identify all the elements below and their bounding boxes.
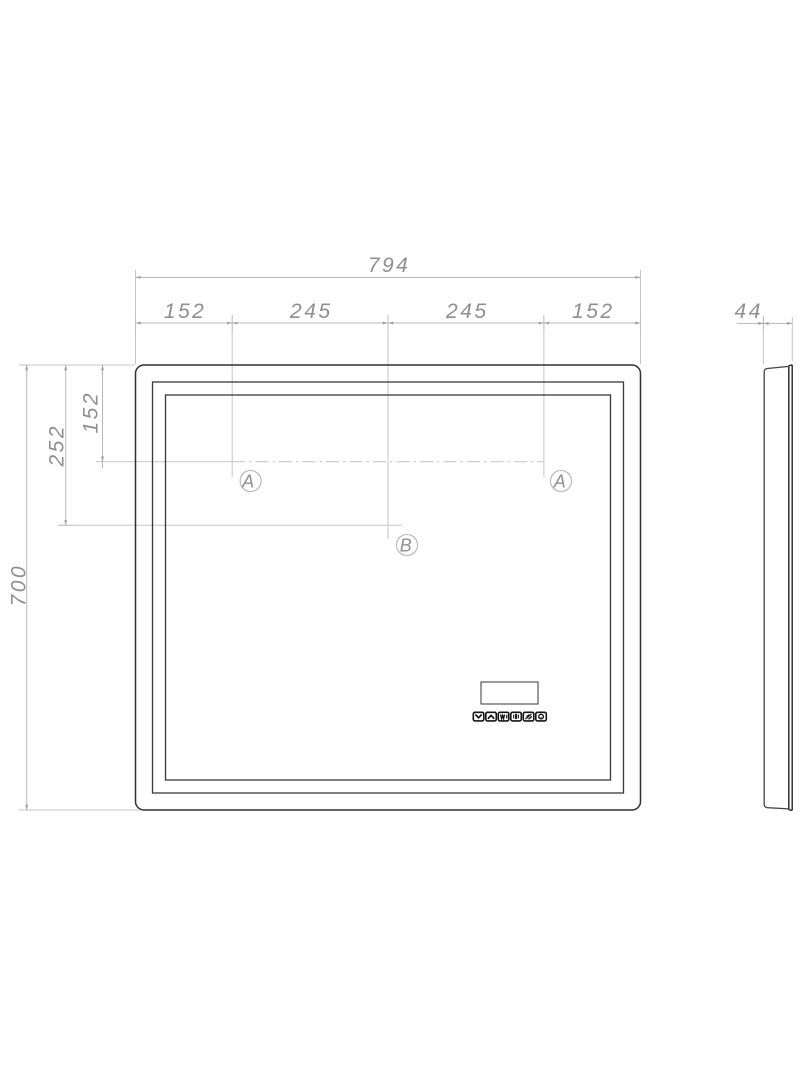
svg-text:152: 152 (572, 300, 615, 323)
svg-text:794: 794 (368, 254, 411, 277)
svg-text:152: 152 (164, 300, 207, 323)
svg-text:B: B (400, 536, 415, 556)
svg-text:A: A (241, 472, 257, 492)
svg-text:245: 245 (289, 300, 333, 323)
svg-text:245: 245 (445, 300, 489, 323)
svg-text:44: 44 (735, 300, 763, 323)
svg-text:700: 700 (7, 564, 30, 607)
svg-text:252: 252 (46, 424, 69, 468)
svg-text:A: A (553, 472, 569, 492)
svg-text:152: 152 (80, 391, 103, 434)
